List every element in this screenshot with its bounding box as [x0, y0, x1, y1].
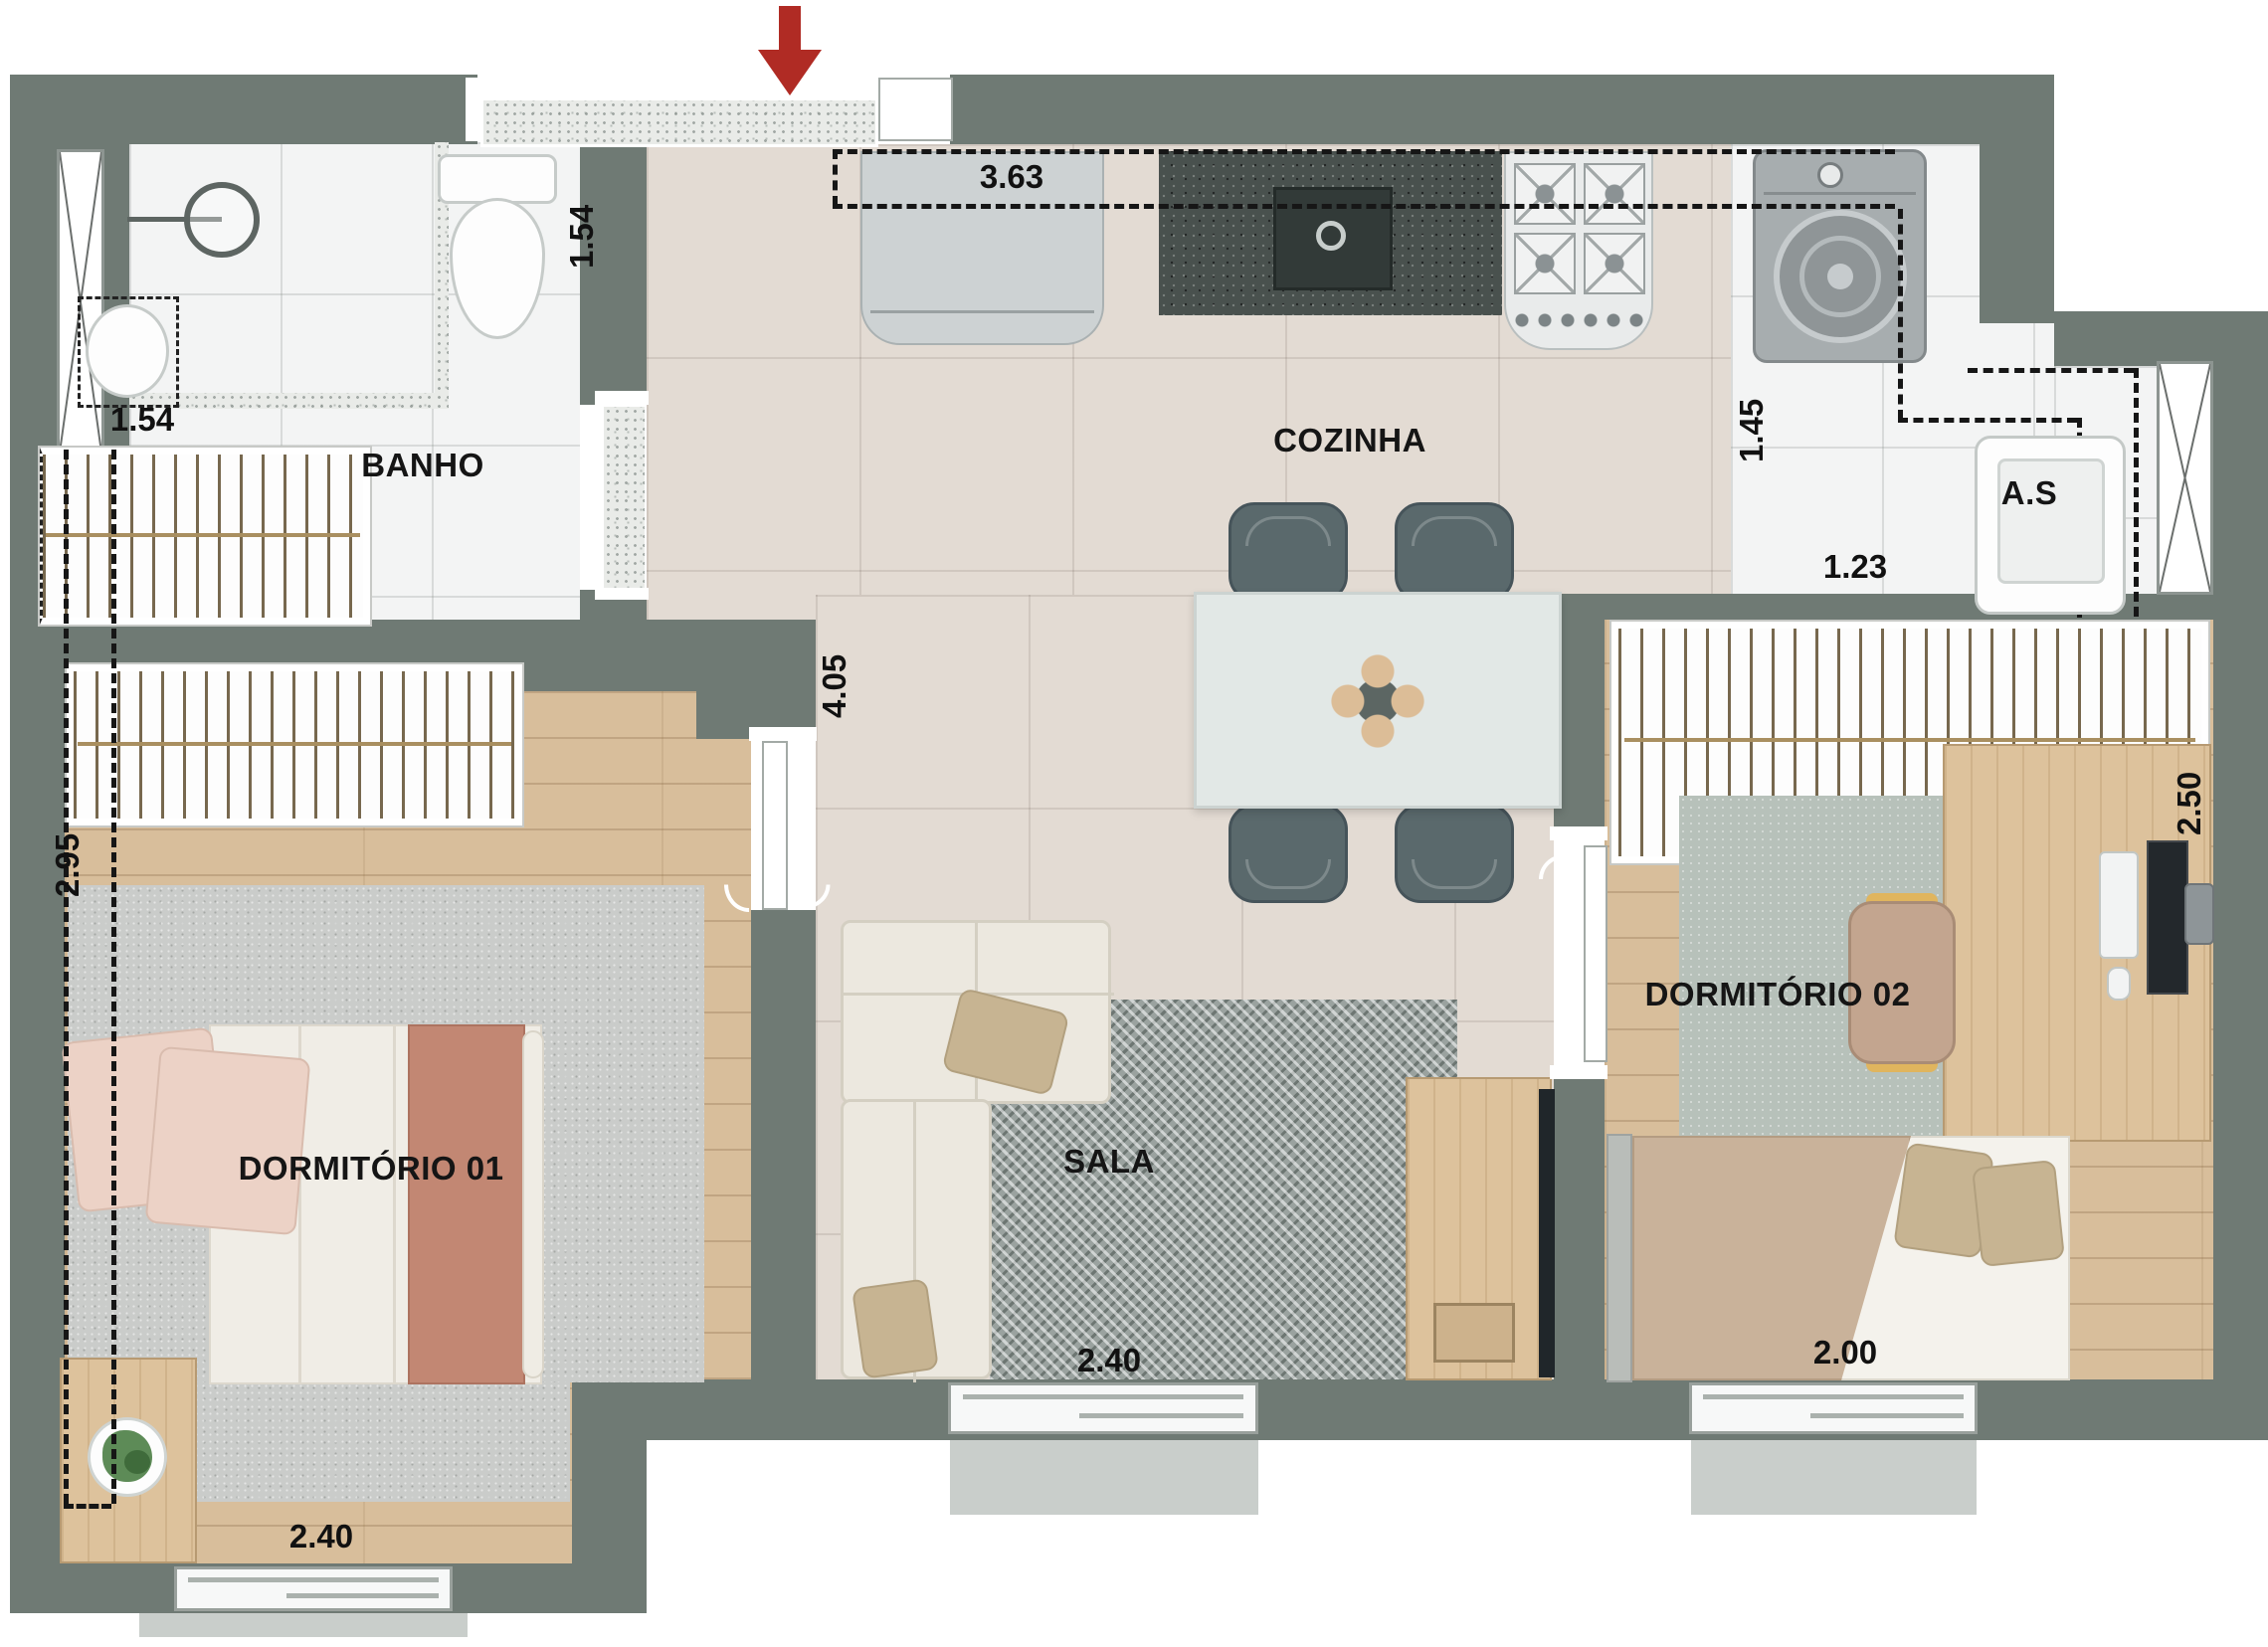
entrance-door-leaf — [878, 78, 953, 141]
toilet — [438, 154, 557, 343]
label-servico: A.S — [1984, 473, 2074, 513]
bedroom1-wardrobe — [67, 664, 522, 825]
label-banho: BANHO — [348, 446, 497, 485]
stove-knobs — [1512, 310, 1649, 330]
dim-dorm1-width: 2.40 — [267, 1517, 376, 1556]
sofa-pillow-2 — [851, 1278, 939, 1379]
bath-door-jamb-top — [595, 391, 649, 405]
dim-line-kitchen-left — [833, 149, 838, 206]
bedroom2-door-jamb-bottom — [1550, 1065, 1607, 1079]
wall-right — [2213, 311, 2268, 1440]
wall-notch-vertical — [1980, 75, 2054, 323]
dim-line-as-2 — [1898, 418, 2077, 423]
dim-line-kitchen-top — [833, 149, 1895, 154]
dim-line-as-5 — [2134, 368, 2139, 661]
wall-bedroom1-corner-block — [696, 620, 816, 739]
dim-line-295-bottom — [64, 1504, 111, 1509]
dining-chair-3 — [1228, 804, 1348, 903]
entrance-mat — [480, 97, 878, 147]
dining-chair-1 — [1228, 502, 1348, 602]
living-room-window-sill — [950, 1440, 1258, 1515]
dim-banho-width: 1.54 — [88, 400, 197, 440]
label-cozinha: COZINHA — [1255, 421, 1444, 460]
table-centerpiece — [1331, 654, 1424, 748]
entrance-arrow-icon — [758, 6, 822, 97]
bathroom-door — [602, 405, 647, 590]
kitchen-faucet-icon — [1316, 221, 1346, 251]
wall-bedroom2-top-thin — [1554, 594, 2268, 620]
dining-chair-2 — [1395, 502, 1514, 602]
bedroom1-door-leaf — [762, 741, 788, 910]
bed2-headboard — [1606, 1134, 1632, 1382]
bedroom2-window — [1689, 1382, 1978, 1434]
dim-line-295-right — [111, 450, 116, 1504]
wall-left-lower — [10, 622, 65, 1613]
stove — [1504, 151, 1653, 350]
washer-dial-icon — [1817, 162, 1843, 188]
bath-door-jamb-bottom — [595, 588, 649, 600]
bed1-throw — [408, 1024, 525, 1384]
bath-sink — [86, 304, 169, 398]
desk-speaker — [2184, 883, 2214, 945]
bedroom2-door-leaf — [1584, 845, 1607, 1062]
dim-dorm1-depth: 2.95 — [46, 796, 90, 935]
bedroom1-window — [174, 1566, 453, 1611]
bedroom2-door-jamb-top — [1550, 826, 1607, 840]
laundry-tank — [1975, 436, 2126, 615]
label-sala: SALA — [1035, 1140, 1184, 1184]
wall-bottom — [612, 1379, 2268, 1440]
dim-cozinha: 3.63 — [957, 155, 1066, 199]
tv — [1539, 1089, 1555, 1377]
bedroom1-window-sill — [139, 1613, 468, 1637]
dim-dorm2-depth: 2.50 — [2167, 734, 2212, 873]
dim-circulacao: 4.05 — [814, 617, 855, 756]
desk-mouse — [2107, 967, 2131, 1001]
service-window — [2157, 361, 2213, 595]
dim-servico-width: 1.23 — [1800, 547, 1910, 587]
dining-chair-4 — [1395, 804, 1514, 903]
dim-sala-width: 2.40 — [1054, 1341, 1164, 1380]
dim-dorm2-width: 2.00 — [1791, 1333, 1900, 1372]
label-dorm2: DORMITÓRIO 02 — [1613, 975, 1942, 1014]
entrance-jamb-left — [466, 78, 480, 141]
living-room-window — [948, 1382, 1258, 1434]
label-dorm1: DORMITÓRIO 01 — [192, 1149, 550, 1189]
bedroom1-bed — [65, 1024, 542, 1384]
bedroom2-window-sill — [1691, 1440, 1977, 1515]
bed2-pillow-2 — [1972, 1160, 2065, 1267]
desk-keyboard — [2099, 851, 2139, 959]
shower-head-icon — [184, 182, 260, 258]
dim-banho-depth: 1.54 — [562, 157, 602, 316]
dim-line-kitchen-bottom — [833, 204, 1895, 209]
wall-bedroom2-left-b — [1554, 1067, 1605, 1440]
tv-rack — [1406, 1077, 1552, 1380]
floor-plan: BANHO COZINHA A.S SALA DORMITÓRIO 01 DOR… — [0, 0, 2268, 1647]
wall-top-mid — [950, 75, 2054, 144]
dim-line-295-left — [64, 450, 69, 1504]
dim-servico-depth: 1.45 — [1731, 366, 1773, 495]
hall-closet — [40, 448, 370, 625]
bed1-pillow-2 — [145, 1046, 311, 1236]
dim-line-as-6 — [1968, 368, 2134, 373]
bedroom1-door-jamb-top — [749, 727, 817, 741]
wall-bedroom1-right — [751, 910, 816, 1387]
bed1-footboard — [522, 1030, 544, 1378]
plant-icon — [88, 1417, 167, 1497]
dim-line-as-1 — [1898, 209, 1903, 420]
